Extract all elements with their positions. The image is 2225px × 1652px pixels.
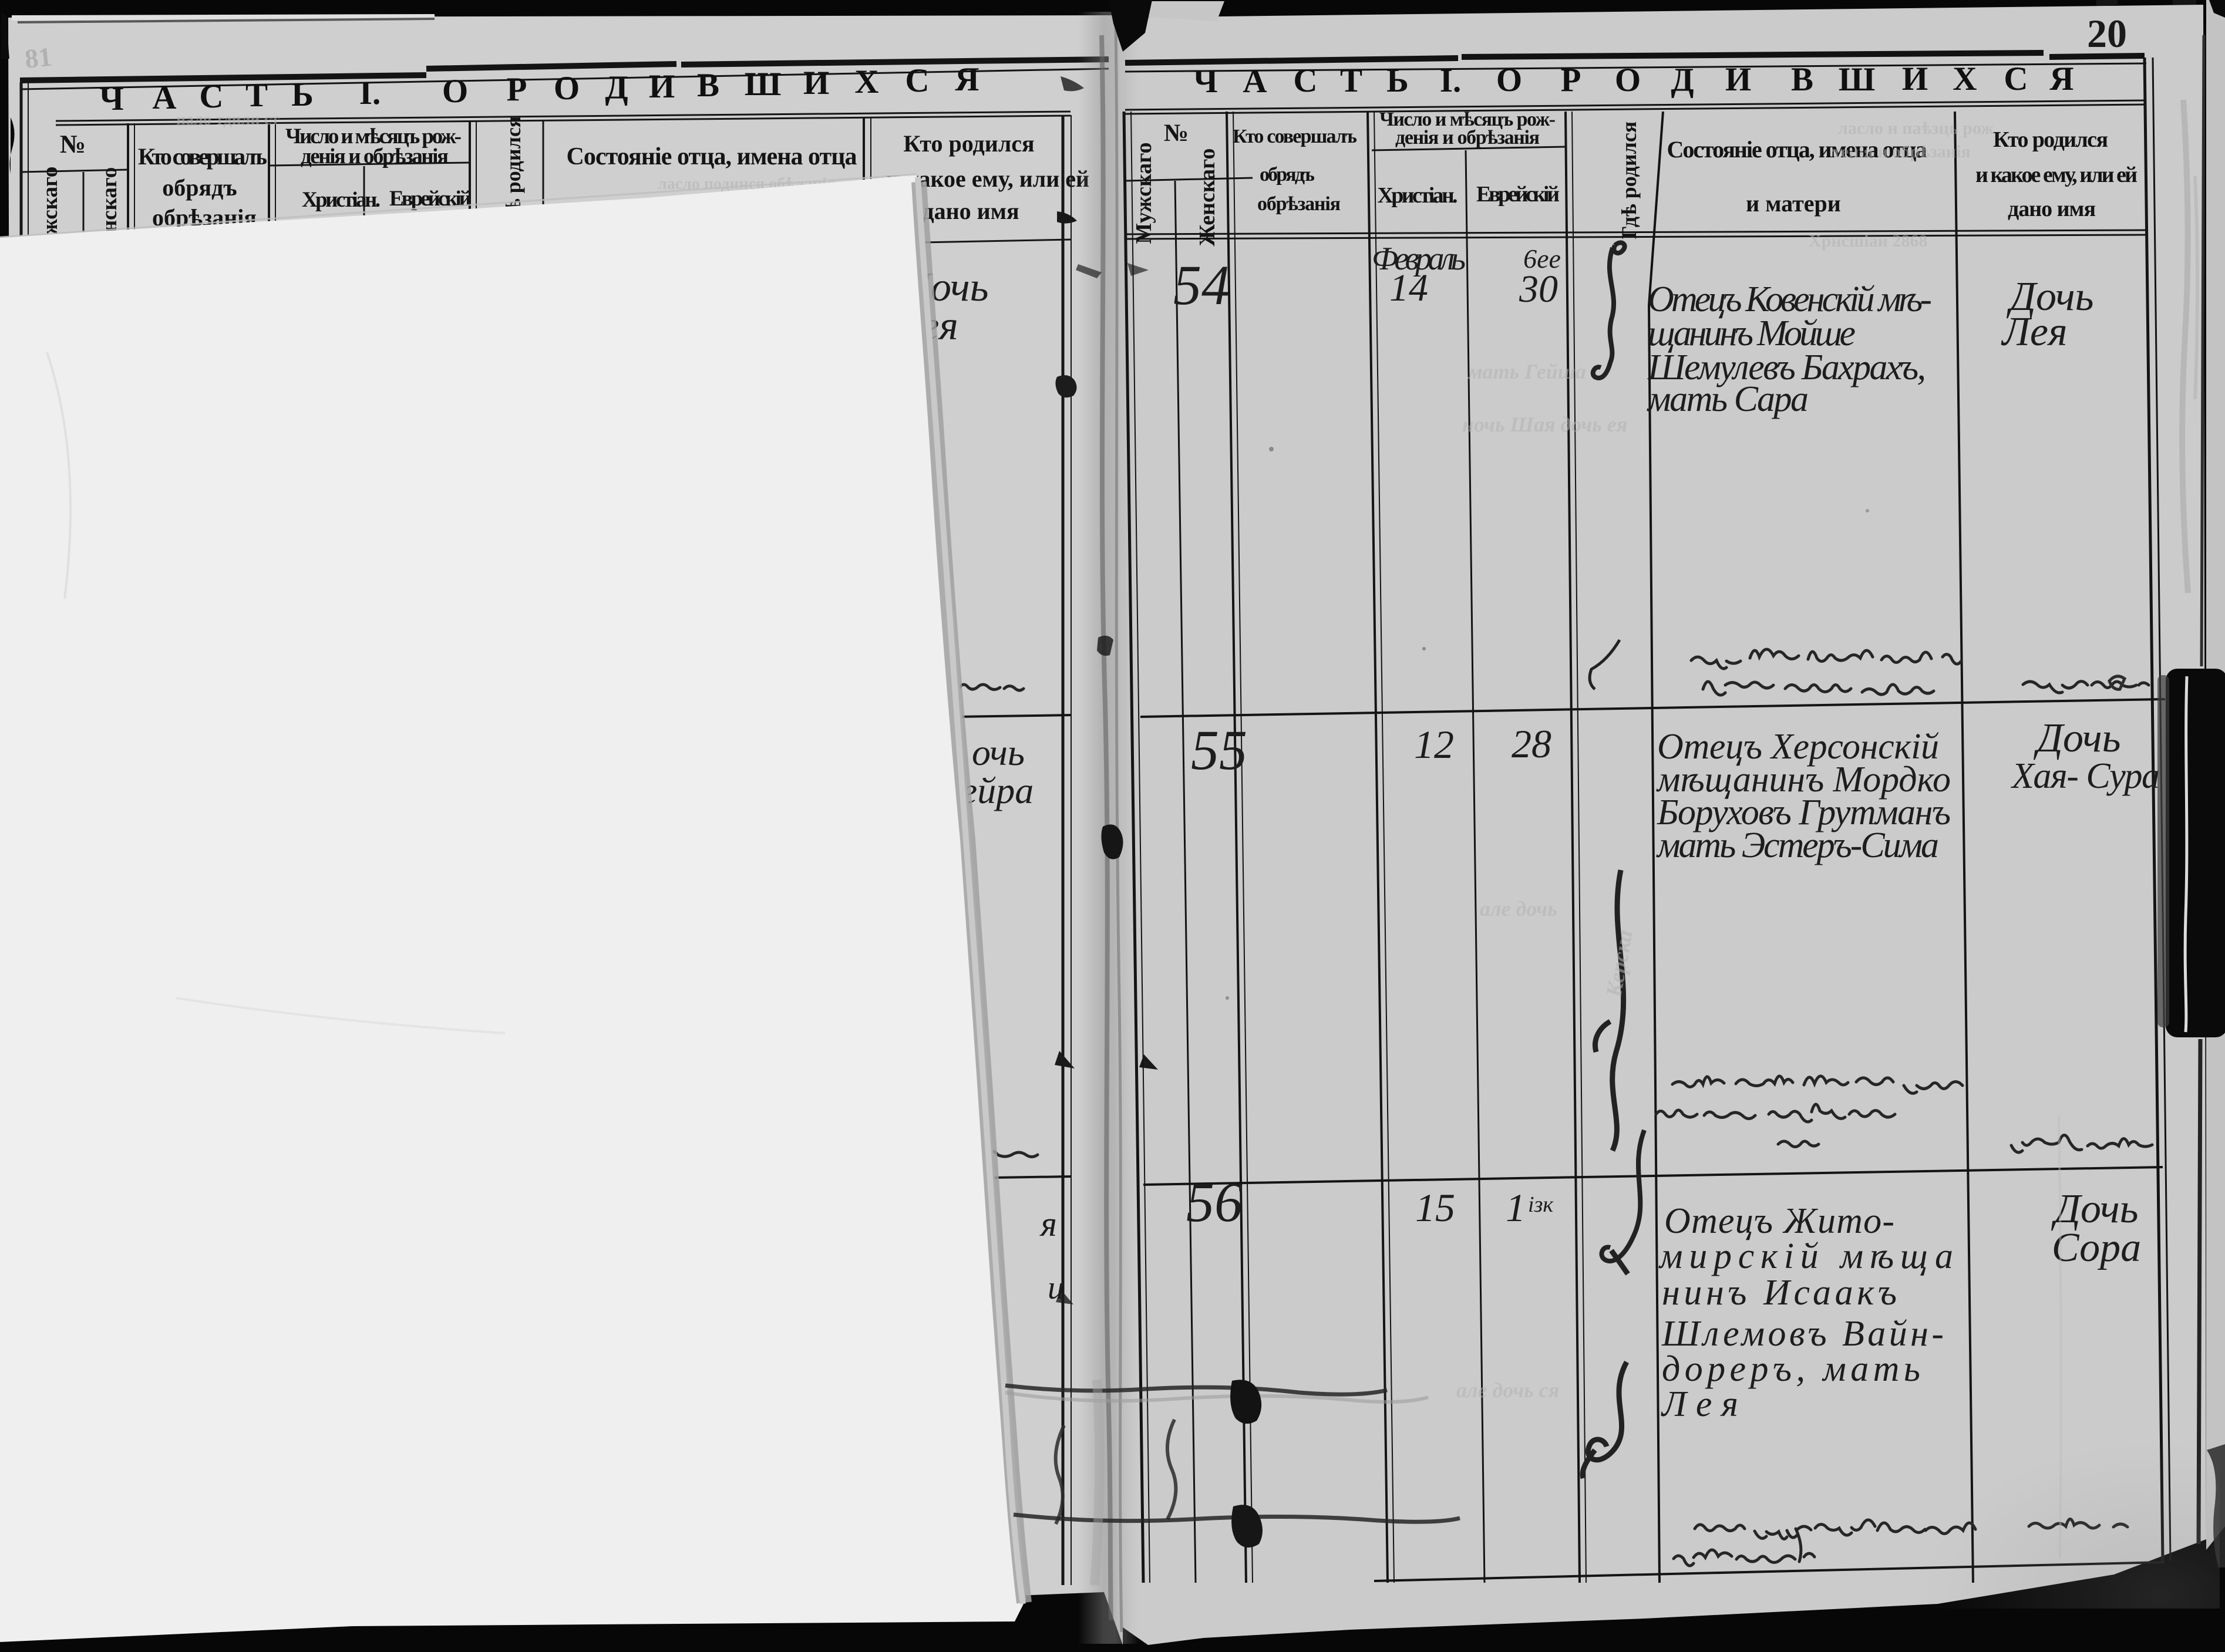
svg-text:Гдѣ родился: Гдѣ родился xyxy=(1617,122,1641,240)
svg-text:ізк: ізк xyxy=(1528,1192,1554,1217)
svg-text:О: О xyxy=(442,73,468,110)
svg-text:О: О xyxy=(1615,62,1641,99)
svg-text:ночь Шая дочь ея: ночь Шая дочь ея xyxy=(1462,413,1627,436)
svg-text:Лея: Лея xyxy=(2001,309,2067,355)
svg-text:дано имя: дано имя xyxy=(2008,197,2096,221)
svg-text:15: 15 xyxy=(1415,1185,1455,1230)
svg-text:Христіан.: Христіан. xyxy=(302,188,381,212)
svg-text:20: 20 xyxy=(2087,11,2127,56)
svg-text:теиія и обрѣзаиія: теиія и обрѣзаиія xyxy=(1832,142,1971,161)
svg-text:я: я xyxy=(1039,1205,1057,1243)
svg-text:В: В xyxy=(697,67,719,104)
svg-text:Ч: Ч xyxy=(99,80,124,117)
svg-text:Отецъ Жито-: Отецъ Жито- xyxy=(1664,1201,1894,1241)
svg-text:А: А xyxy=(1243,63,1267,100)
svg-text:С: С xyxy=(905,62,929,99)
svg-text:и матери: и матери xyxy=(1746,190,1841,217)
svg-text:мирскій мѣща: мирскій мѣща xyxy=(1658,1236,1953,1276)
svg-text:55: 55 xyxy=(1191,719,1247,781)
svg-text:Р: Р xyxy=(1561,62,1581,99)
svg-text:Ш: Ш xyxy=(745,66,782,103)
svg-text:Шлемовъ Вайн-: Шлемовъ Вайн- xyxy=(1661,1314,1944,1354)
svg-text:мать Сара: мать Сара xyxy=(1647,379,1809,419)
svg-text:28: 28 xyxy=(1512,722,1551,766)
svg-text:ласло н паѣзць рож: ласло н паѣзць рож xyxy=(1838,119,1994,138)
svg-text:54: 54 xyxy=(1173,254,1230,316)
svg-text:12: 12 xyxy=(1414,722,1454,767)
svg-text:Хая- Сура: Хая- Сура xyxy=(2010,756,2160,796)
svg-text:С: С xyxy=(199,78,223,115)
svg-text:нало тдили ст: нало тдили ст xyxy=(176,110,280,129)
svg-text:№: № xyxy=(1164,120,1189,147)
svg-text:А: А xyxy=(152,79,176,116)
svg-text:Лея: Лея xyxy=(1661,1384,1738,1424)
svg-text:Д: Д xyxy=(1671,62,1694,99)
svg-text:30: 30 xyxy=(1519,268,1558,311)
svg-text:С: С xyxy=(2004,60,2028,97)
svg-text:Сора: Сора xyxy=(2052,1225,2141,1270)
svg-text:Еврейскій: Еврейскій xyxy=(1476,182,1560,207)
svg-text:Кто совершалъ: Кто совершалъ xyxy=(1233,126,1357,147)
svg-text:I.: I. xyxy=(359,75,381,112)
svg-text:О: О xyxy=(1496,62,1522,99)
svg-text:Кто родился: Кто родился xyxy=(1993,127,2108,152)
svg-text:Д: Д xyxy=(605,69,628,106)
svg-text:56: 56 xyxy=(1186,1171,1243,1233)
svg-text:Я: Я xyxy=(2049,60,2073,97)
svg-text:але дочь: але дочь xyxy=(1480,897,1557,921)
svg-text:обрядъ: обрядъ xyxy=(1260,164,1315,186)
svg-text:Дочь: Дочь xyxy=(2034,716,2121,761)
svg-text:Я: Я xyxy=(955,61,979,98)
svg-text:В: В xyxy=(1791,61,1813,98)
svg-text:№: № xyxy=(60,130,86,159)
svg-text:Кто совершалъ: Кто совершалъ xyxy=(138,143,267,170)
svg-text:и какое ему, или ей: и какое ему, или ей xyxy=(1975,163,2138,187)
svg-text:Х: Х xyxy=(1953,60,1977,97)
svg-text:Ч: Ч xyxy=(1193,63,1218,100)
svg-text:обрѣзанія: обрѣзанія xyxy=(1257,193,1341,215)
svg-text:Хрнсшіаи 2868: Хрнсшіаи 2868 xyxy=(1809,231,1927,251)
svg-text:мать Гейша: мать Гейша xyxy=(1467,360,1586,383)
svg-text:денія и обрѣзанія: денія и обрѣзанія xyxy=(301,144,449,168)
svg-text:О: О xyxy=(554,70,580,107)
svg-text:1: 1 xyxy=(1506,1185,1526,1230)
svg-text:очь: очь xyxy=(972,731,1025,773)
svg-text:Ь: Ь xyxy=(1386,62,1409,99)
svg-text:I.: I. xyxy=(1440,62,1461,99)
svg-text:И: И xyxy=(649,68,675,105)
svg-text:Ш: Ш xyxy=(1839,61,1876,98)
svg-text:И: И xyxy=(803,65,829,102)
svg-text:14: 14 xyxy=(1389,267,1428,309)
svg-text:81: 81 xyxy=(23,41,53,74)
svg-text:Христіан.: Христіан. xyxy=(1378,183,1458,208)
svg-text:Состояніе отца, имена отца: Состояніе отца, имена отца xyxy=(567,143,857,170)
svg-text:обрядъ: обрядъ xyxy=(162,174,237,201)
svg-text:Х: Х xyxy=(854,63,878,100)
svg-text:С: С xyxy=(1293,62,1317,99)
svg-text:денія и обрѣзанія: денія и обрѣзанія xyxy=(1395,127,1540,149)
svg-text:але дочь ся: але дочь ся xyxy=(1456,1378,1559,1402)
svg-text:нинъ Исаакъ: нинъ Исаакъ xyxy=(1662,1273,1897,1313)
svg-text:мать Эстеръ-Сима: мать Эстеръ-Сима xyxy=(1656,825,1939,865)
svg-text:дано имя: дано имя xyxy=(922,198,1019,224)
svg-text:Т: Т xyxy=(245,77,268,114)
svg-text:И: И xyxy=(1902,60,1928,97)
svg-text:Женскаго: Женскаго xyxy=(1195,149,1220,247)
svg-text:Кто родился: Кто родился xyxy=(903,130,1034,157)
svg-text:Мужскаго: Мужскаго xyxy=(1132,142,1156,244)
svg-text:Ь: Ь xyxy=(291,76,314,113)
svg-text:Р: Р xyxy=(507,71,527,108)
svg-text:И: И xyxy=(1725,61,1751,98)
svg-text:Т: Т xyxy=(1340,62,1362,99)
